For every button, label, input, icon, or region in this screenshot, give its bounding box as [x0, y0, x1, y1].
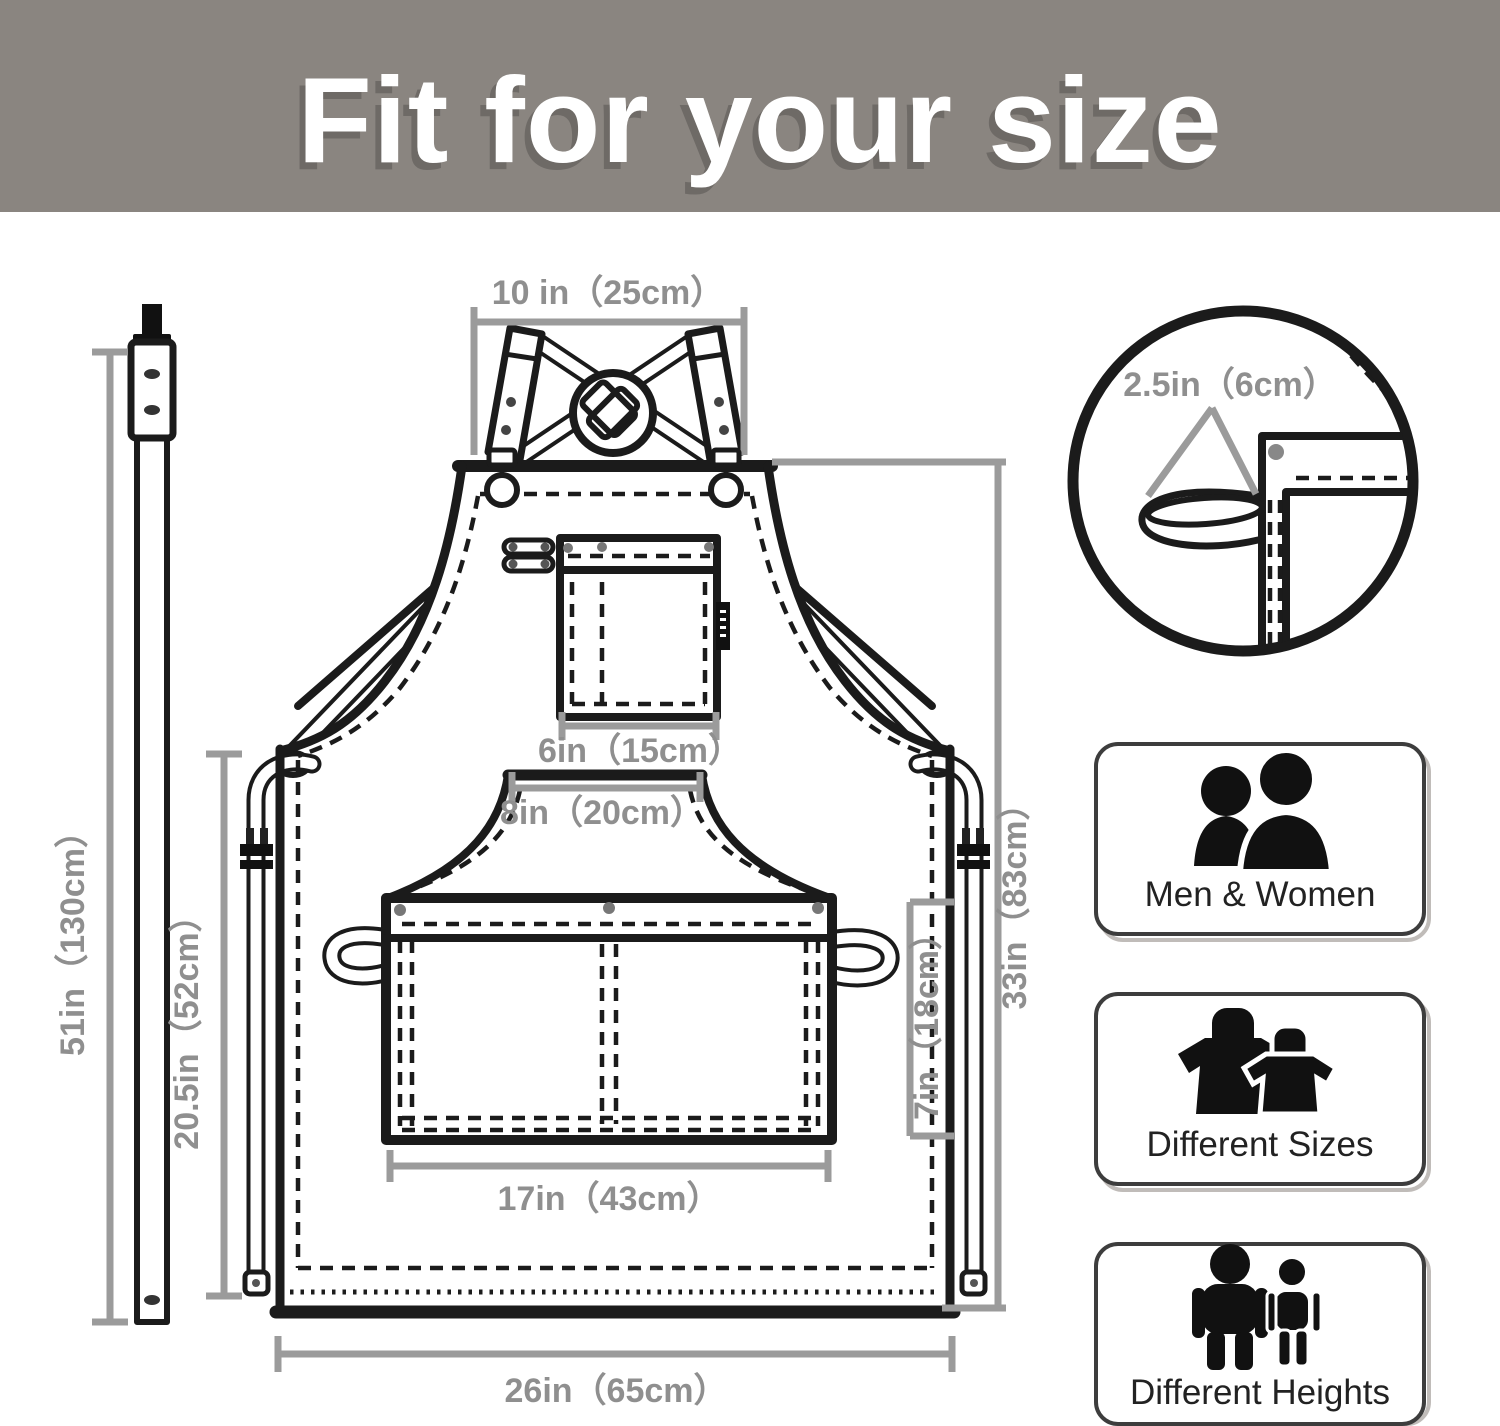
cross-back-straps [488, 328, 742, 468]
feature-badge-different-heights: Different Heights [1096, 1244, 1429, 1424]
dim-label-chest-pocket: 6in（15cm） [538, 731, 742, 770]
dim-strap-length: 51in（130cm） [53, 352, 128, 1322]
feature-badge-men-women: Men & Women [1096, 744, 1429, 940]
strap-rivet [144, 405, 160, 415]
badge-label-different-sizes: Different Sizes [1147, 1125, 1374, 1164]
dim-label-side-loop: 2.5in（6cm） [1123, 365, 1337, 404]
strap-rivet [144, 1295, 160, 1305]
dim-label-apron-length: 33in（83cm） [995, 787, 1034, 1010]
header-banner: Fit for your size Fit for your size [0, 0, 1500, 212]
dim-label-pocket-opening: 8in（20cm） [500, 793, 704, 832]
dim-label-front-pocket-width: 17in（43cm） [498, 1179, 721, 1218]
neck-strap-illustration [131, 304, 173, 1322]
front-pocket [332, 898, 890, 1140]
badge-label-different-heights: Different Heights [1130, 1373, 1390, 1412]
badge-label-men-women: Men & Women [1145, 875, 1376, 914]
grommet-left [487, 475, 517, 505]
dim-label-waist-tie: 20.5in（52cm） [167, 898, 206, 1149]
dim-waist-tie: 20.5in（52cm） [167, 754, 242, 1296]
grommet-right [711, 475, 741, 505]
strap-body [137, 342, 167, 1322]
dim-label-strap-length: 51in（130cm） [53, 814, 92, 1056]
dim-bottom-width: 26in（65cm） [278, 1336, 952, 1410]
feature-badge-different-sizes: Different Sizes [1096, 994, 1429, 1190]
detail-circle: 2.5in（6cm） [1073, 292, 1436, 655]
dim-label-neck-strap: 10 in（25cm） [492, 273, 724, 312]
dim-label-bottom-width: 26in（65cm） [505, 1371, 728, 1410]
dim-label-front-pocket-height: 7in（18cm） [907, 916, 946, 1120]
page-title: Fit for your size [297, 52, 1222, 188]
strap-buckle [131, 342, 173, 438]
apron-size-infographic: Fit for your size Fit for your size 51in… [0, 0, 1500, 1426]
strap-rivet [144, 369, 160, 379]
diagram-canvas: Fit for your size Fit for your size 51in… [0, 0, 1500, 1426]
